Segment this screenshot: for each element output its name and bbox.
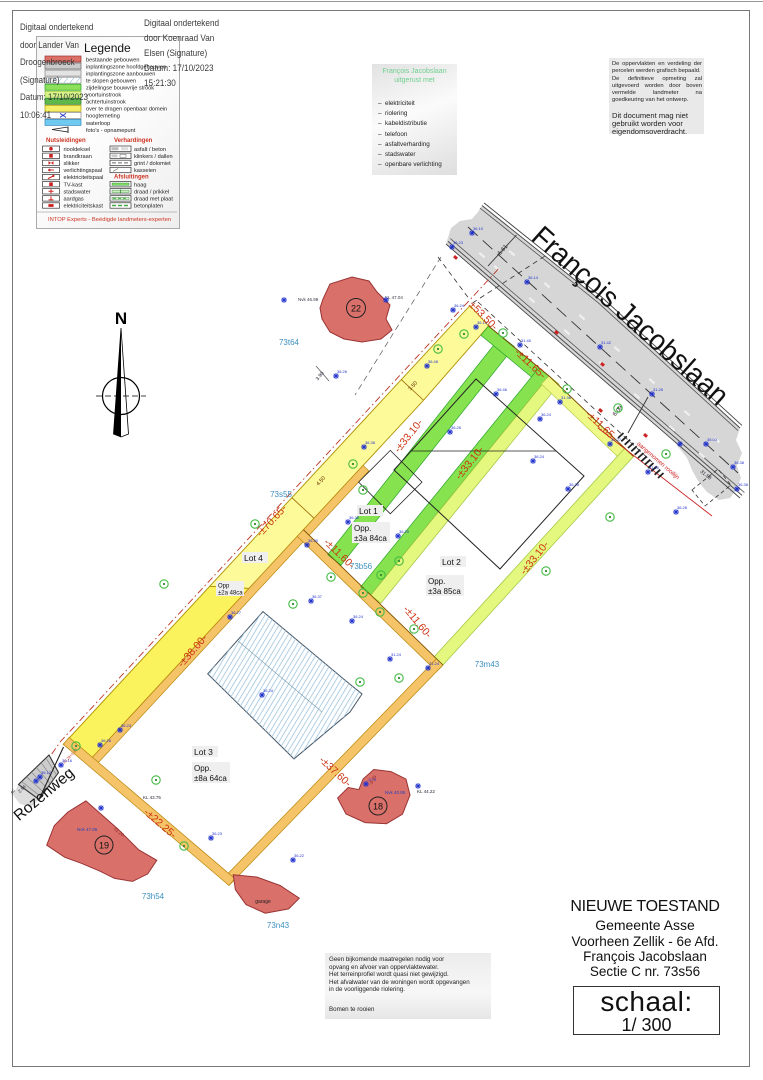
svg-text:Verhardingen: Verhardingen [114, 138, 153, 144]
svg-text:verlichtingspaal: verlichtingspaal [64, 168, 103, 174]
svg-text:riooldeksel: riooldeksel [64, 147, 91, 153]
svg-text:te slopen gebouwen: te slopen gebouwen [86, 78, 136, 84]
svg-text:over te dragen openbaar domein: over te dragen openbaar domein [86, 107, 167, 113]
svg-text:asfalt / beton: asfalt / beton [134, 147, 166, 153]
svg-text:betonplaten: betonplaten [134, 204, 163, 210]
svg-text:foto's - opnamepunt: foto's - opnamepunt [86, 128, 136, 134]
svg-text:slikker: slikker [64, 161, 80, 167]
svg-text:elektriciteitskast: elektriciteitskast [64, 204, 104, 210]
svg-text:bestaande gebouwen: bestaande gebouwen [86, 57, 140, 63]
svg-text:haag: haag [134, 182, 146, 188]
svg-text:grint / dolomiet: grint / dolomiet [134, 161, 171, 167]
svg-text:elektriciteitspaal: elektriciteitspaal [64, 175, 104, 181]
svg-text:kasseien: kasseien [134, 168, 156, 174]
svg-text:stadswater: stadswater [64, 189, 91, 195]
svg-text:draad / prikkel: draad / prikkel [134, 189, 169, 195]
svg-text:brandkraan: brandkraan [64, 154, 92, 160]
svg-text:Nutsleidingen: Nutsleidingen [46, 138, 86, 144]
svg-text:INTOP Experts - Beëdigde landm: INTOP Experts - Beëdigde landmeters-expe… [48, 217, 171, 223]
svg-text:Afsluitingen: Afsluitingen [114, 175, 149, 181]
svg-text:klinkers / dallen: klinkers / dallen [134, 154, 173, 160]
svg-text:draad met plaat: draad met plaat [134, 197, 173, 203]
svg-text:TV-kast: TV-kast [64, 182, 83, 188]
svg-text:aardgas: aardgas [64, 197, 84, 203]
